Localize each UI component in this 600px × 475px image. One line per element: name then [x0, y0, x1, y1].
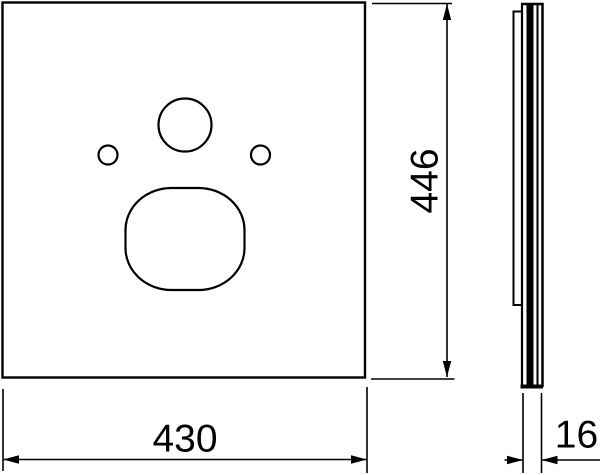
large-cutout: [126, 188, 245, 290]
panel-outline: [3, 3, 366, 378]
technical-drawing-page: 430 446 16: [0, 0, 600, 475]
right-small-hole: [251, 146, 270, 165]
side-glass-layer: [527, 5, 534, 387]
dimension-width: 430: [3, 387, 367, 473]
side-bottom-cap: [521, 385, 544, 389]
dimension-label-thickness: 16: [555, 414, 598, 457]
front-view: [3, 3, 366, 378]
dimension-thickness: 16: [505, 393, 600, 473]
arrowhead-left-icon: [542, 456, 558, 465]
dimension-label-width: 430: [152, 418, 217, 461]
side-view: [514, 3, 544, 389]
dimension-label-height: 446: [404, 148, 447, 213]
arrowhead-right-icon: [351, 455, 367, 464]
top-center-hole: [159, 99, 212, 152]
arrowhead-left-icon: [3, 455, 19, 464]
dimension-height: 446: [371, 4, 455, 380]
arrowhead-right-icon: [507, 456, 523, 465]
arrowhead-down-icon: [443, 361, 451, 377]
left-small-hole: [99, 146, 118, 165]
arrowhead-up-icon: [443, 4, 451, 20]
technical-drawing-canvas: 430 446 16: [0, 0, 600, 475]
side-back-plate: [514, 12, 523, 306]
